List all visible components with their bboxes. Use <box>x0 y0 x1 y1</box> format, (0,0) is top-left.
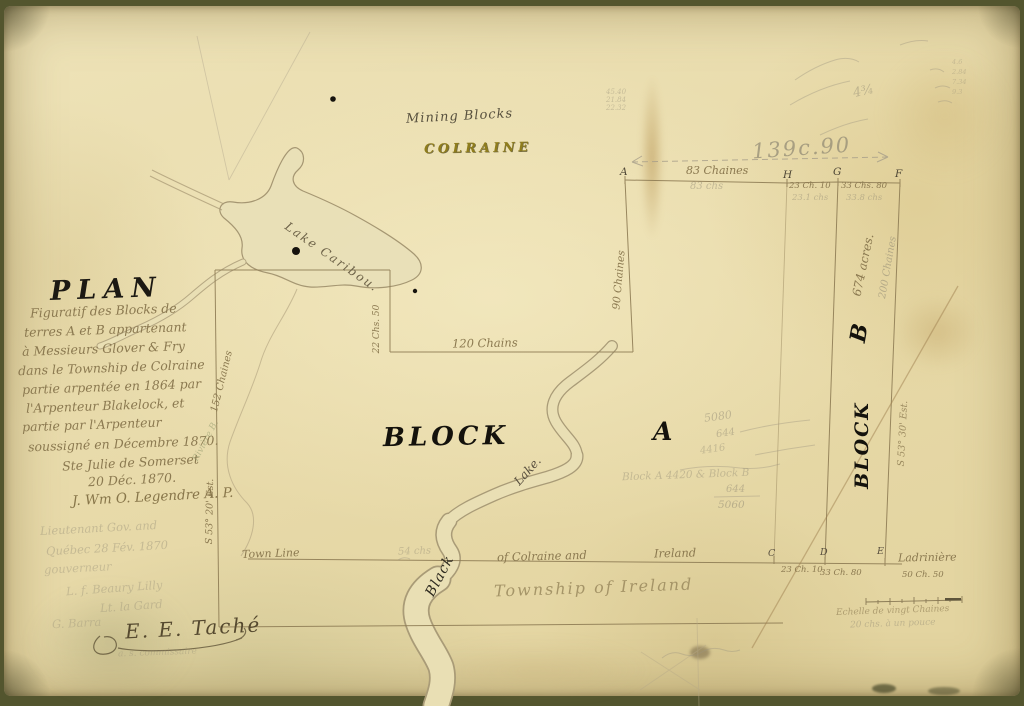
block-a-east-line <box>774 183 787 560</box>
pencil-col: 4.6 <box>952 58 962 66</box>
pencil-frac-top: 644 <box>726 484 745 495</box>
seg-83-chaines: 83 Chaines <box>686 164 748 177</box>
stream-northwest <box>150 170 224 210</box>
pencil-col: 22.32 <box>606 104 626 112</box>
seg-33-pencil: 33.8 chs <box>846 193 882 203</box>
ireland-word: Ireland <box>654 545 697 560</box>
pencil-col: 7.34 <box>952 78 966 86</box>
point-d: D <box>820 547 828 558</box>
town-line-pencil: 54 chs <box>398 545 431 557</box>
pencil-col: 2.84 <box>952 68 966 76</box>
west-bearing: S 53° 20' Est. <box>204 456 217 566</box>
point-h: H <box>783 169 792 181</box>
pencil-col: 45.40 <box>606 88 626 96</box>
pencil-col: 21.84 <box>606 96 626 104</box>
point-a: A <box>620 166 628 178</box>
seg-23-pencil: 23.1 chs <box>792 193 828 203</box>
town-line-label: Town Line <box>242 546 300 561</box>
central-stream <box>416 346 612 706</box>
line-120-chains: 120 Chains <box>452 335 518 350</box>
township-title: COLRAINE <box>424 140 532 157</box>
scanned-survey-map: Mining Blocks COLRAINE PLAN Figuratif de… <box>0 0 1024 706</box>
ink-blot-1 <box>330 96 336 102</box>
pencil-frac-bottom: 5060 <box>718 499 745 511</box>
block-b-word: BLOCK <box>851 400 873 490</box>
pencil-col: 9.3 <box>952 88 962 96</box>
fold-creases <box>640 618 706 706</box>
point-c: C <box>768 548 775 559</box>
block-a-word: BLOCK <box>383 421 510 453</box>
ink-blot-3 <box>413 289 417 293</box>
block-a-letter: A <box>653 417 672 446</box>
colraine-side-label: of Colraine and <box>497 548 587 564</box>
bottom-seg3: 50 Ch. 50 <box>902 570 944 580</box>
pencil-note-line: G. Barra <box>52 615 102 632</box>
seg-83-pencil: 83 chs <box>690 181 723 192</box>
point-f: F <box>895 168 902 180</box>
point-g: G <box>833 166 841 178</box>
place-ladriniere: Ladrinière <box>898 550 957 564</box>
bottom-seg1: 23 Ch. 10 <box>781 565 823 575</box>
lake-caribou-shape <box>220 148 421 288</box>
ink-blot-2 <box>292 247 300 255</box>
point-e: E <box>877 546 884 557</box>
seg-23ch10: 23 Ch. 10 <box>789 181 831 191</box>
bottom-seg2: 33 Ch. 80 <box>820 568 862 578</box>
offset-22ch50: 22 Chs. 50 <box>372 289 382 369</box>
seg-33ch80: 33 Chs. 80 <box>841 181 887 191</box>
